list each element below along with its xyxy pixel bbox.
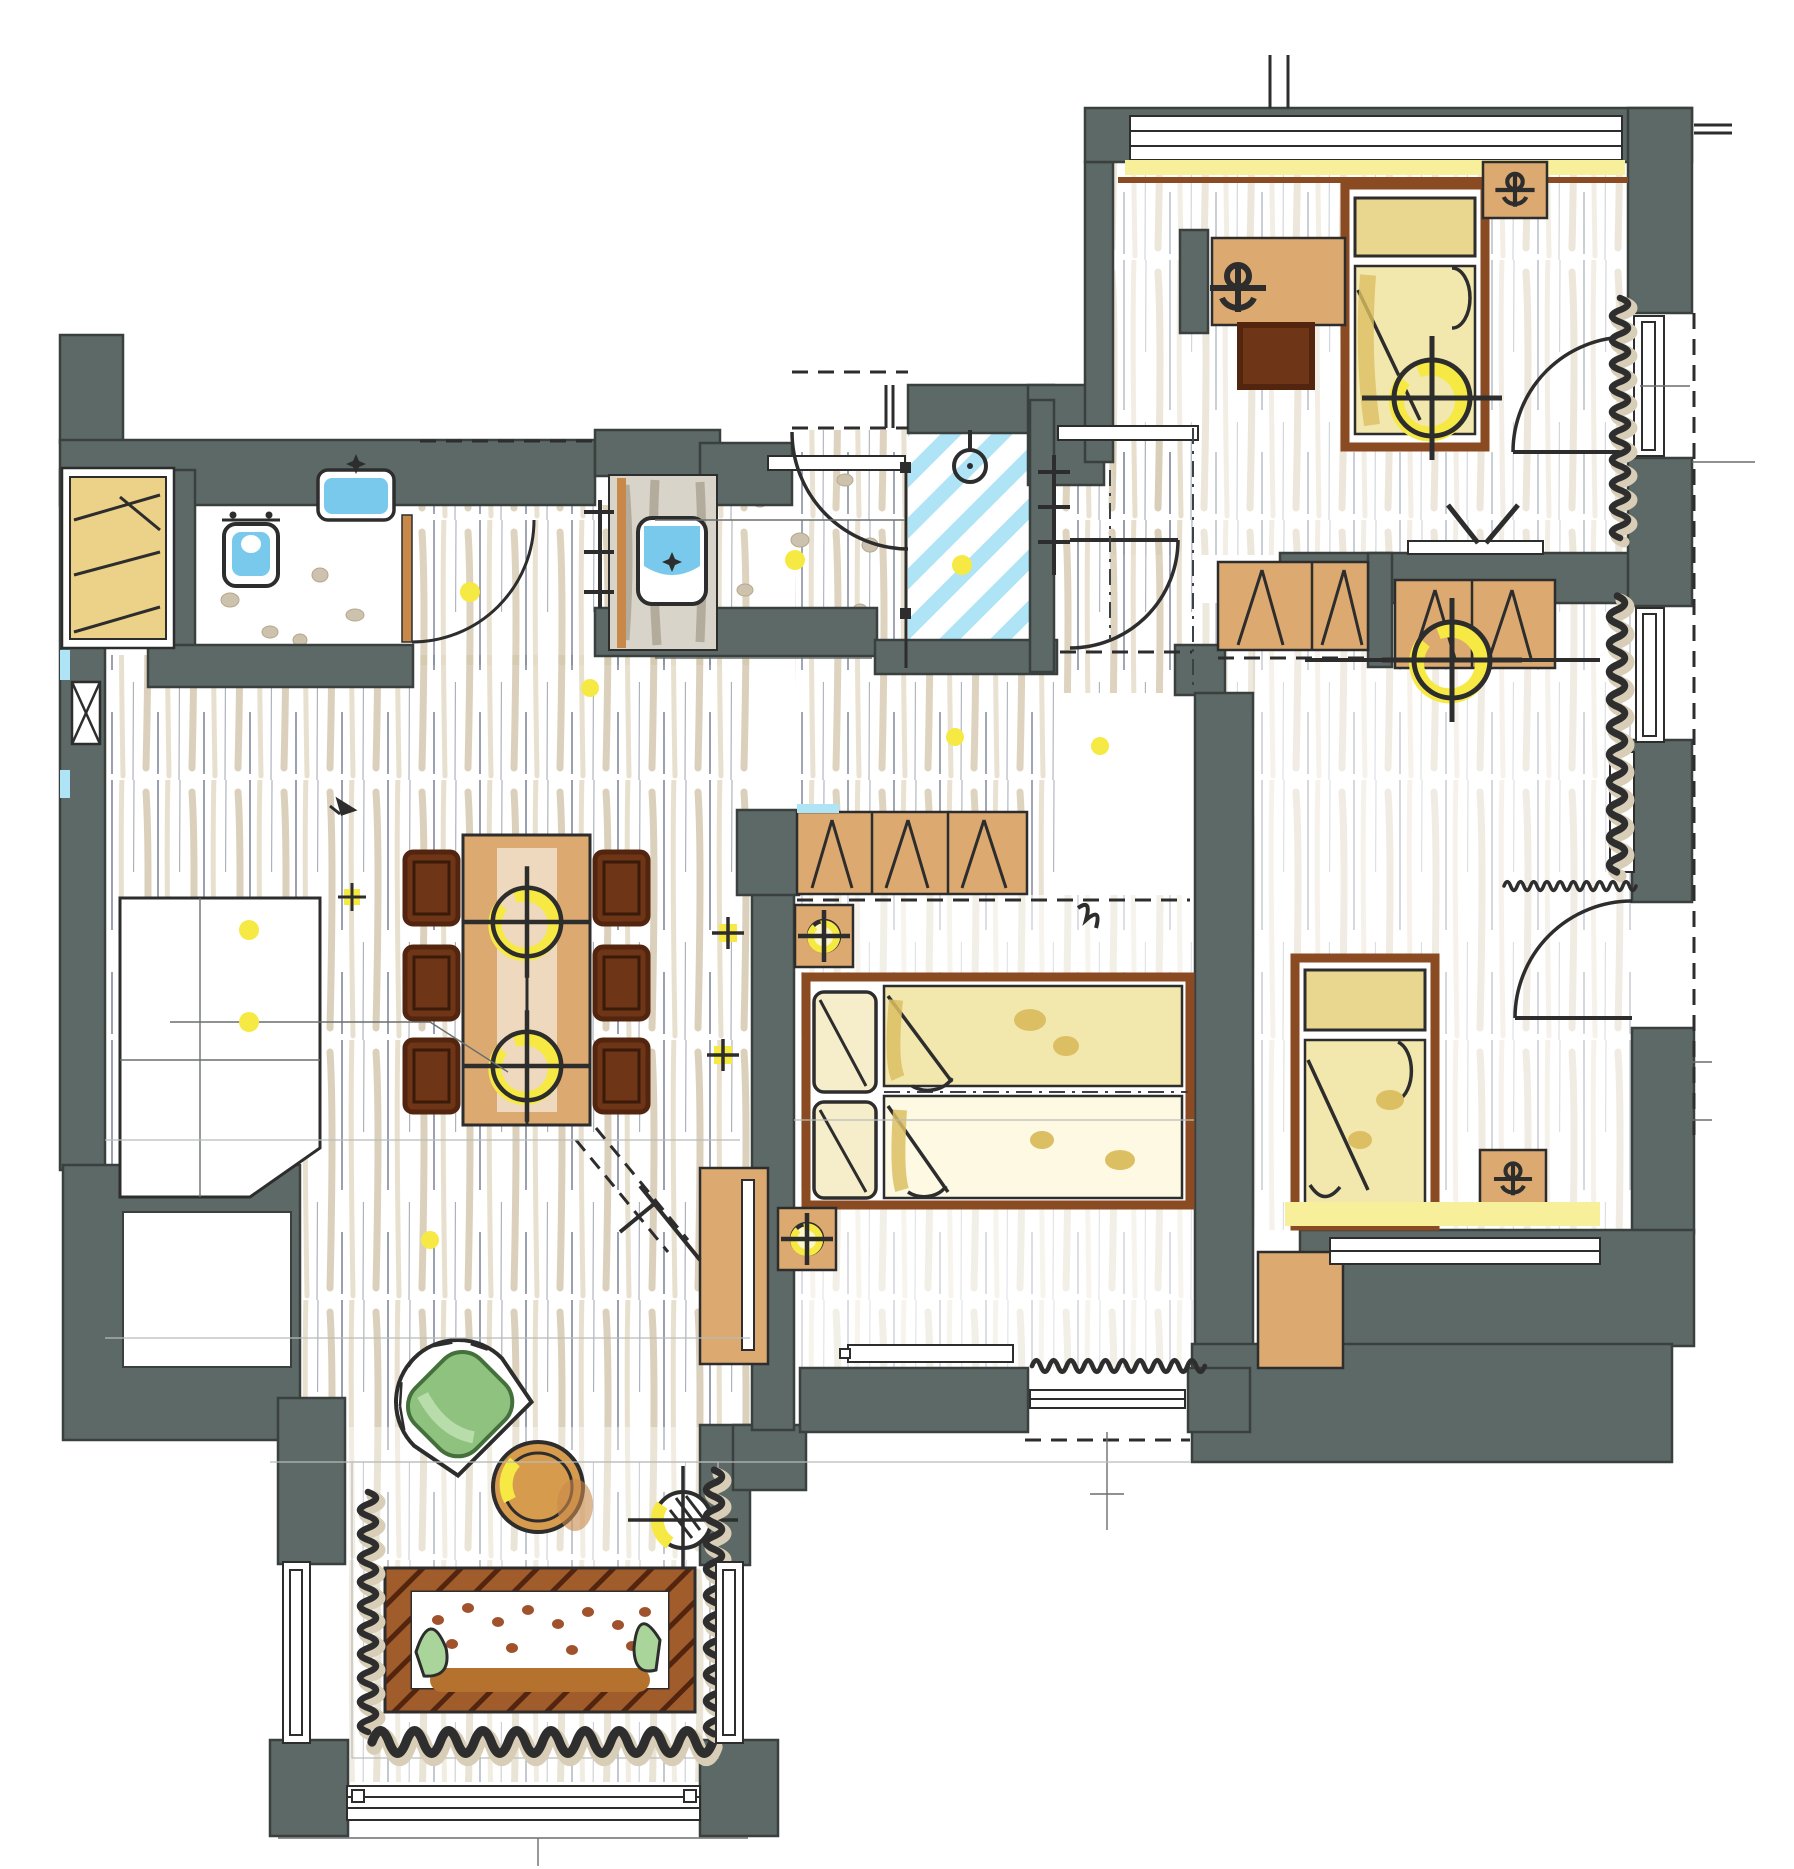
bay-window-bottom: [347, 1786, 700, 1820]
sofa: [385, 1568, 695, 1712]
wall-living-south-stub: [733, 1425, 806, 1490]
wall-east-d: [1632, 1028, 1694, 1233]
wall-bedroom3-west: [1195, 693, 1253, 1368]
wall-master-nw-stub: [737, 810, 799, 895]
b2-desk: [1210, 238, 1345, 325]
b2-north-window: [1130, 116, 1622, 160]
b3-curtain: [1609, 596, 1625, 872]
kids-wardrobe-a: [1218, 562, 1368, 658]
wall-master-south-b: [1188, 1368, 1250, 1432]
toilet: [222, 512, 280, 587]
entry-threshold: [792, 372, 908, 428]
bath-shelf: [768, 456, 905, 470]
vanity-side-panel: [617, 478, 626, 648]
b2-east-window: [1634, 316, 1690, 456]
wall-nw-step: [60, 335, 123, 443]
b3-window-glow: [1285, 1202, 1600, 1226]
sofa-seat-smear: [430, 1668, 650, 1692]
b3-radiator: [1643, 614, 1656, 736]
balcony-outline: [1692, 313, 1755, 1140]
b2-nightstand-west: [1240, 325, 1312, 387]
wall-east-c: [1632, 740, 1692, 902]
kitchen-counter: [120, 898, 320, 1197]
master-radiator: [848, 1345, 1013, 1362]
hall-closet: [62, 468, 174, 648]
wall-master-south-a: [800, 1368, 1028, 1432]
wall-bay-left-corner: [270, 1740, 348, 1836]
b3-door-curtain: [1504, 882, 1636, 891]
floor-plan-canvas: [0, 0, 1794, 1869]
wall-wc-south: [148, 645, 413, 687]
b3-pillow: [1305, 970, 1425, 1030]
wall-east-b: [1628, 458, 1692, 606]
wall-kitchen-void: [123, 1212, 291, 1367]
bay-window-left: [283, 1562, 310, 1743]
master-bed: [806, 977, 1190, 1205]
b2-window-glow: [1125, 160, 1625, 175]
wall-bedroom2-nook: [1180, 230, 1208, 333]
wall-shower-east: [1030, 400, 1054, 672]
bay-window-right: [716, 1562, 743, 1743]
b2-nightstand-ne: [1483, 162, 1547, 218]
floor-plan-drawing: [0, 0, 1794, 1869]
b3-nightstand: [1480, 1150, 1546, 1208]
vanity-basin: [638, 518, 706, 604]
floor-shower: [908, 433, 1030, 672]
master-curtain: [1032, 1360, 1205, 1372]
b3-bed: [1295, 958, 1435, 1226]
wall-kids-stub: [1368, 553, 1392, 667]
wall-bay-left-pier: [278, 1398, 345, 1564]
b2-curtain: [1612, 298, 1628, 538]
wall-east-a: [1628, 108, 1692, 313]
b2-pillow: [1355, 198, 1475, 256]
nightstand-south: [778, 1208, 836, 1270]
master-window: [1025, 1390, 1190, 1530]
doorway-shelf: [1058, 426, 1198, 440]
nightstand-north: [795, 905, 853, 967]
b3-dresser: [1258, 1252, 1343, 1368]
b3-south-window: [1330, 1238, 1600, 1264]
wall-kids-south-stub: [1175, 645, 1225, 695]
wall-bedroom2-west: [1085, 162, 1113, 462]
